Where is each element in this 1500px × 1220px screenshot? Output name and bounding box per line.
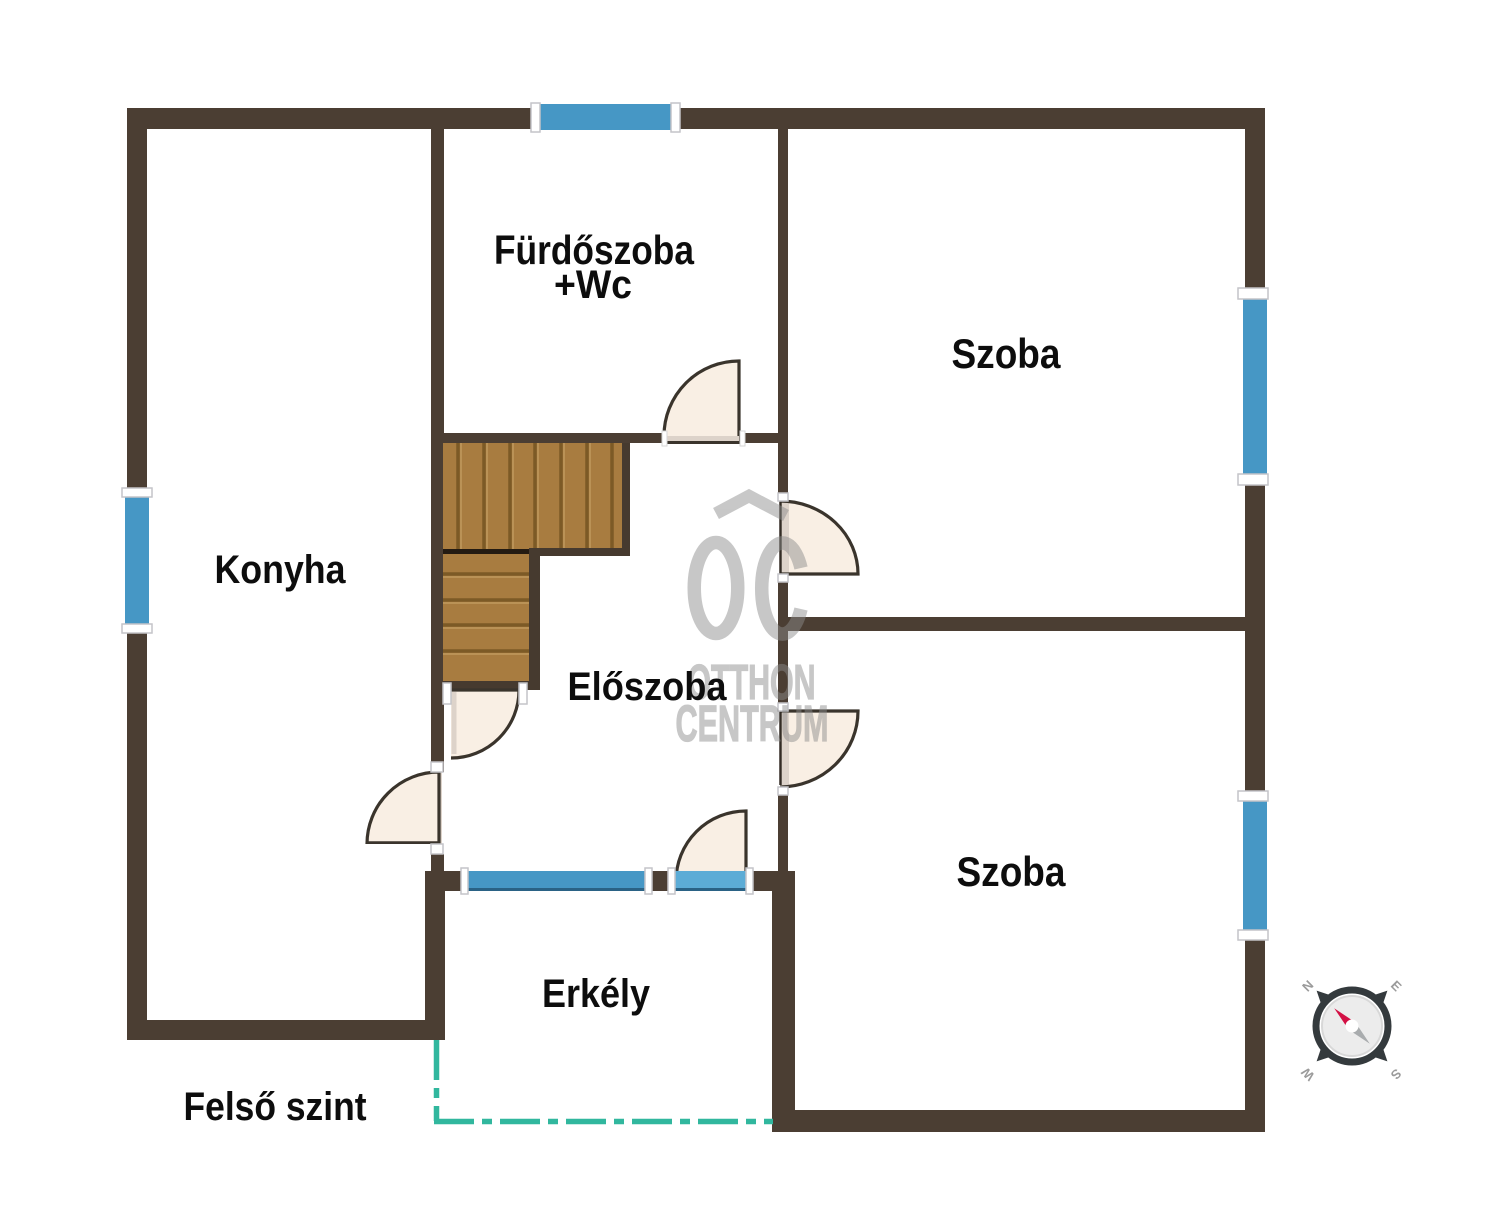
svg-text:Előszoba: Előszoba xyxy=(568,665,728,709)
svg-text:Konyha: Konyha xyxy=(215,548,347,592)
svg-text:Szoba: Szoba xyxy=(957,848,1067,895)
svg-text:Erkély: Erkély xyxy=(542,972,651,1016)
svg-text:+Wc: +Wc xyxy=(554,263,632,307)
svg-text:Szoba: Szoba xyxy=(952,330,1062,377)
svg-text:Felső szint: Felső szint xyxy=(184,1085,367,1129)
